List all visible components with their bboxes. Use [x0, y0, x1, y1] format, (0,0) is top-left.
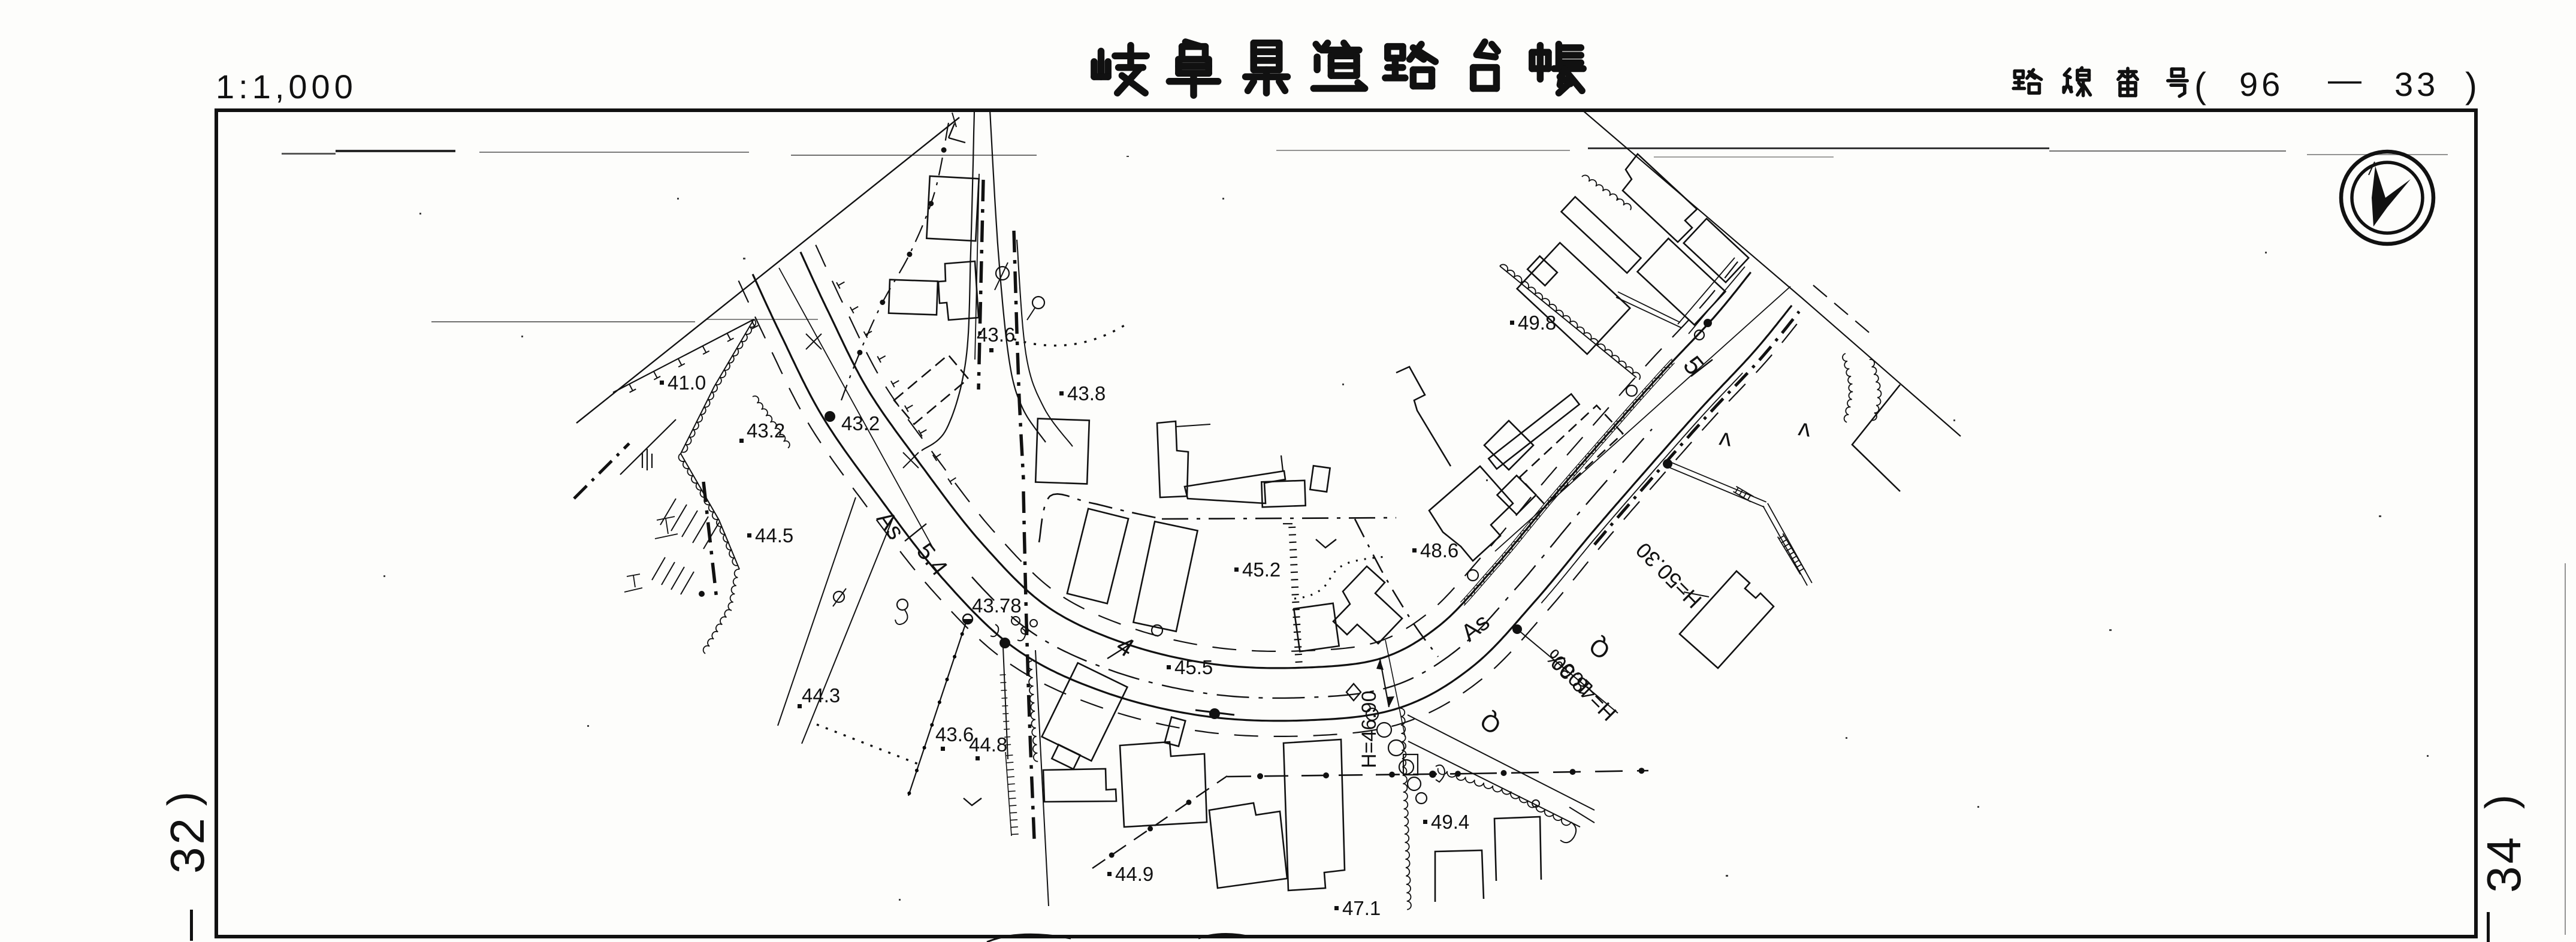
svg-text:43.2: 43.2: [747, 419, 785, 442]
svg-text:45.2: 45.2: [1242, 558, 1281, 581]
svg-text:43.6: 43.6: [977, 324, 1015, 346]
svg-text:33: 33: [2394, 65, 2439, 103]
svg-text:96: 96: [2239, 65, 2284, 103]
svg-text:): ): [2477, 795, 2525, 809]
svg-text:—: —: [2328, 61, 2361, 98]
svg-text:49.8: 49.8: [1518, 312, 1556, 334]
svg-text:1:1,000: 1:1,000: [216, 68, 357, 105]
svg-text:34: 34: [2477, 835, 2530, 893]
svg-text:32: 32: [161, 816, 214, 874]
svg-text:43.6: 43.6: [935, 723, 974, 745]
svg-text:44.3: 44.3: [802, 684, 840, 707]
svg-text:): ): [159, 792, 207, 806]
svg-text:43.8: 43.8: [1067, 382, 1106, 404]
svg-text:): ): [2465, 65, 2477, 105]
svg-text:H=46.90: H=46.90: [1358, 691, 1381, 769]
svg-text:41.0: 41.0: [668, 372, 706, 394]
svg-text:48.6: 48.6: [1420, 539, 1458, 561]
svg-text:43.2: 43.2: [841, 412, 880, 434]
svg-text:44.5: 44.5: [755, 524, 793, 547]
svg-text:43.78: 43.78: [972, 594, 1022, 617]
svg-text:44.8: 44.8: [969, 733, 1007, 756]
svg-text:45.5: 45.5: [1174, 656, 1213, 678]
svg-text:(: (: [2194, 65, 2206, 105]
svg-text:44.9: 44.9: [1115, 863, 1153, 885]
svg-text:49.4: 49.4: [1431, 811, 1469, 833]
svg-text:47.1: 47.1: [1342, 897, 1381, 919]
